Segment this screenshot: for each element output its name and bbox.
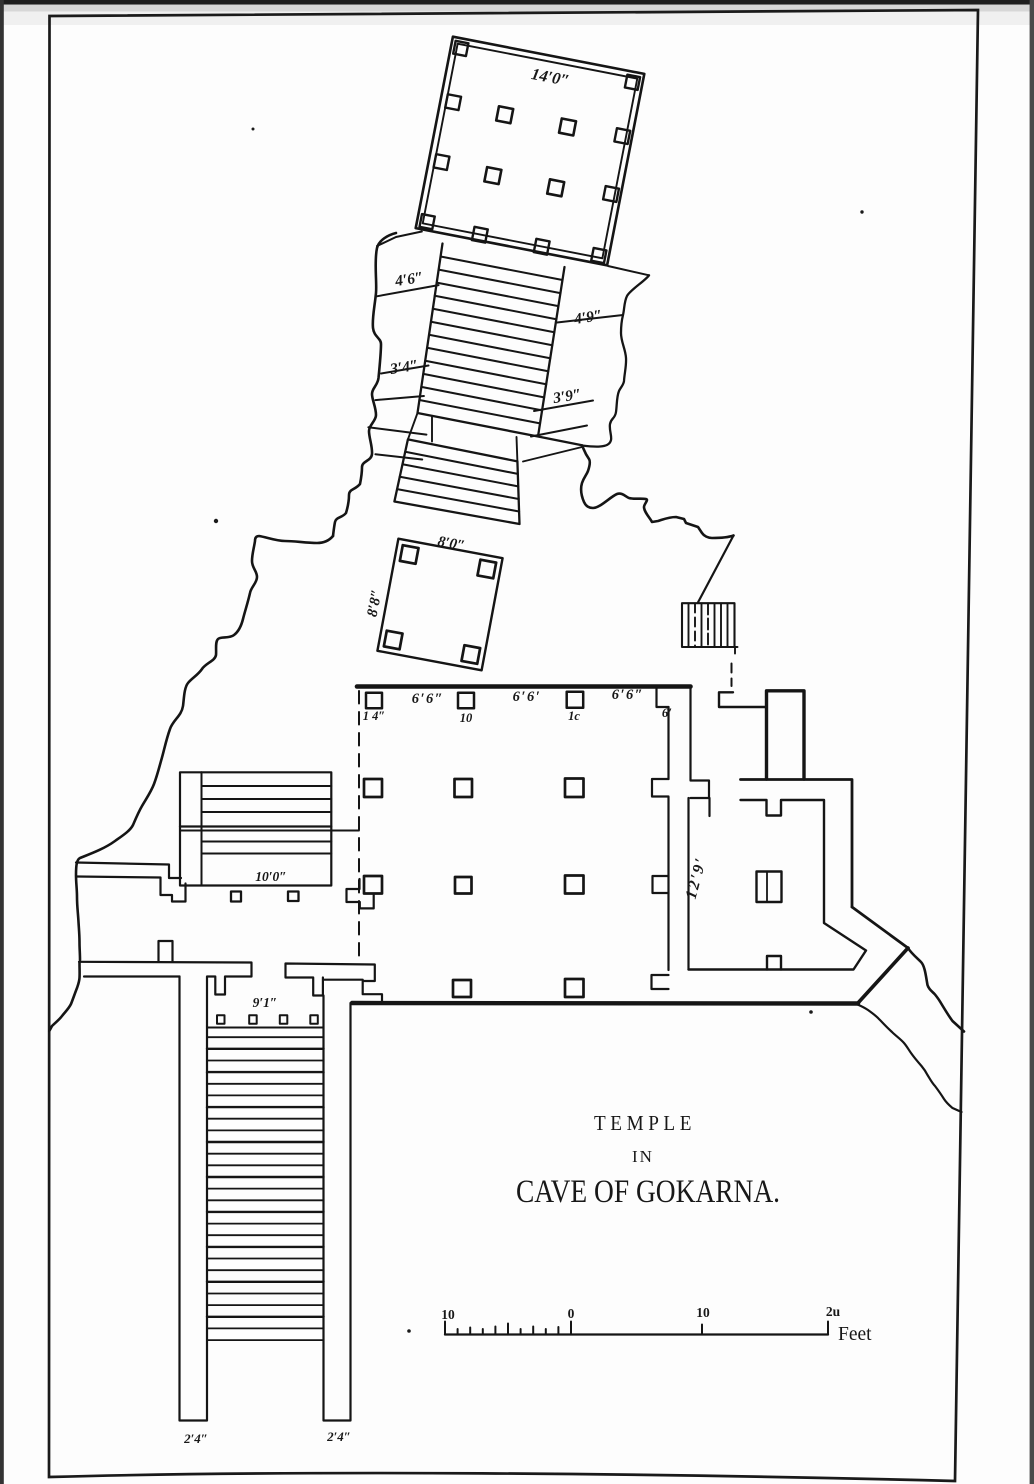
svg-text:10: 10 xyxy=(696,1305,710,1320)
svg-text:1 4″: 1 4″ xyxy=(363,709,386,723)
svg-text:2u: 2u xyxy=(826,1304,841,1319)
svg-text:6′6″: 6′6″ xyxy=(612,687,645,703)
svg-text:1c: 1c xyxy=(568,709,580,723)
svg-text:0: 0 xyxy=(568,1306,575,1321)
svg-text:10′0″: 10′0″ xyxy=(255,869,287,884)
svg-text:IN: IN xyxy=(632,1147,654,1166)
svg-text:6′6″: 6′6″ xyxy=(412,691,445,707)
svg-text:10: 10 xyxy=(460,711,473,725)
svg-text:6′6′: 6′6′ xyxy=(513,689,542,705)
svg-text:2′4″: 2′4″ xyxy=(326,1429,351,1444)
svg-text:10: 10 xyxy=(441,1307,455,1322)
svg-text:6′: 6′ xyxy=(662,705,673,720)
svg-text:TEMPLE: TEMPLE xyxy=(594,1111,696,1135)
svg-text:CAVE OF GOKARNA.: CAVE OF GOKARNA. xyxy=(516,1174,780,1210)
svg-text:Feet: Feet xyxy=(838,1324,872,1345)
svg-text:2′4″: 2′4″ xyxy=(183,1431,208,1446)
svg-text:9′1″: 9′1″ xyxy=(253,995,278,1010)
